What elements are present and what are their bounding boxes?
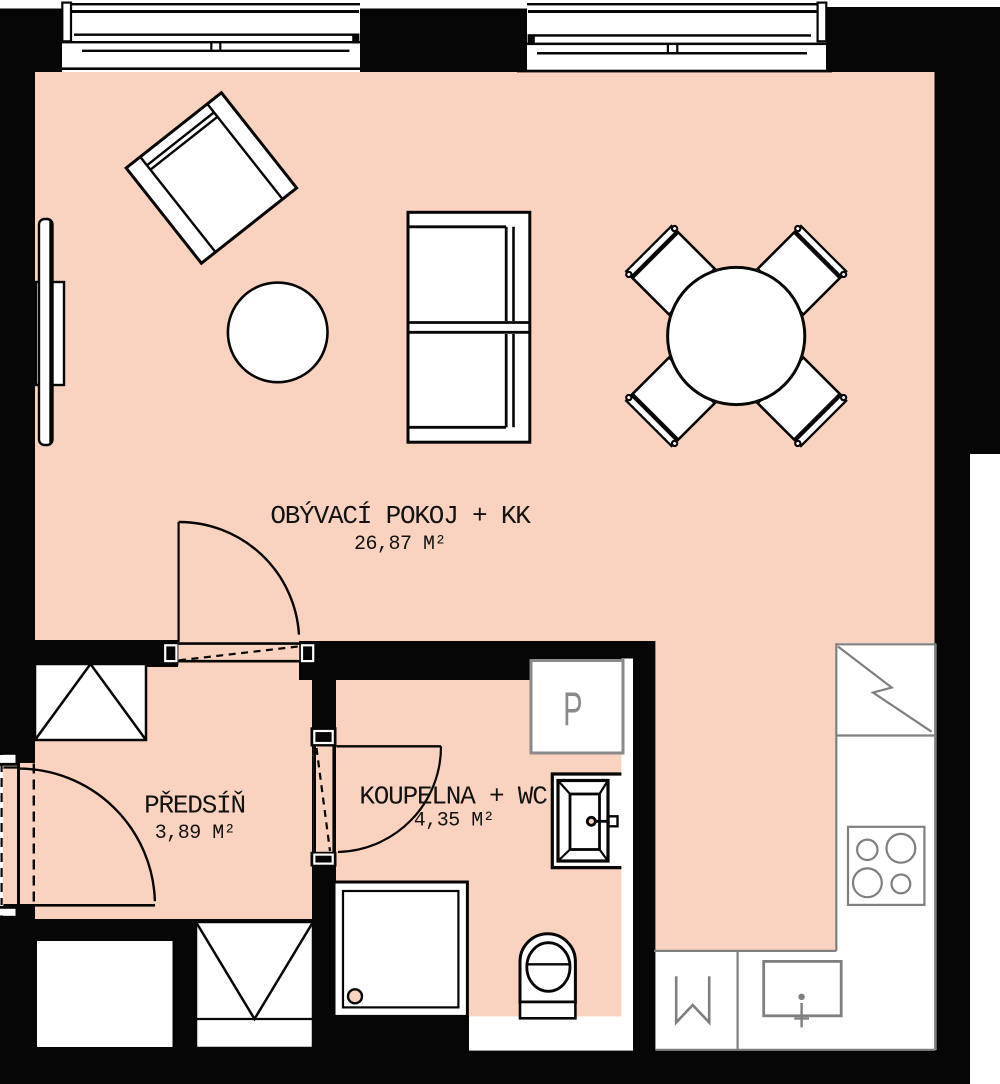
- svg-text:3,89 M²: 3,89 M²: [155, 822, 236, 845]
- svg-text:OBÝVACÍ POKOJ + KK: OBÝVACÍ POKOJ + KK: [270, 501, 531, 531]
- svg-text:KOUPELNA + WC: KOUPELNA + WC: [359, 782, 547, 812]
- svg-text:26,87 M²: 26,87 M²: [354, 533, 446, 556]
- svg-text:4,35 M²: 4,35 M²: [414, 810, 495, 833]
- svg-text:PŘEDSÍŇ: PŘEDSÍŇ: [144, 791, 245, 821]
- svg-text:P: P: [563, 684, 582, 736]
